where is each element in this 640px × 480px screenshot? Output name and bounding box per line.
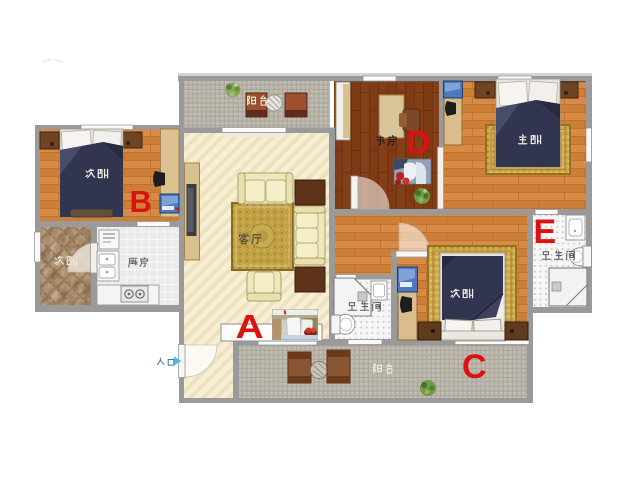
svg-text:E: E (534, 213, 557, 251)
svg-text:C: C (462, 348, 487, 386)
svg-text:D: D (407, 124, 431, 161)
svg-text:B: B (130, 184, 152, 219)
svg-text:A: A (236, 308, 264, 345)
